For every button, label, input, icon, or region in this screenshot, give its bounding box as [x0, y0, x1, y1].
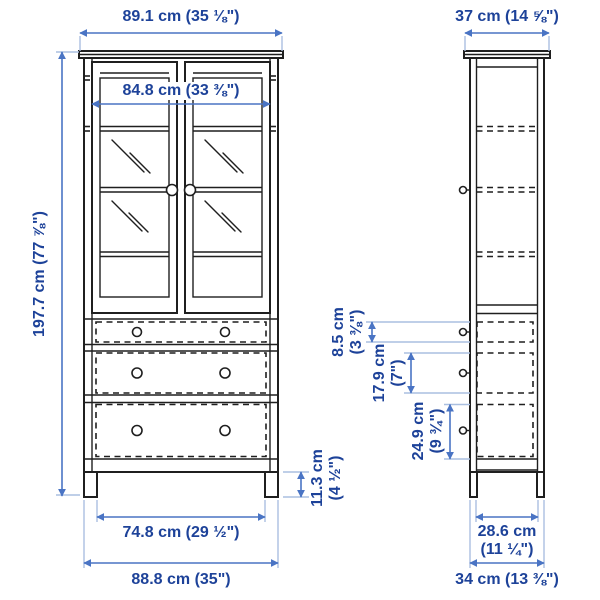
dim-inner-base-depth [476, 500, 538, 522]
imperial-text: (11 ¼") [478, 541, 537, 559]
imperial-text: (4 ½") [327, 449, 345, 507]
dim-label-top-drawer-height: 8.5 cm (3 ⅜") [330, 307, 366, 357]
dimension-lines [56, 33, 549, 568]
imperial-text: (7") [389, 344, 407, 403]
drawer-1 [96, 322, 266, 342]
imperial-text: (14 ⅝") [505, 8, 559, 25]
dim-overall-depth [465, 33, 549, 51]
side-drawer-2-knob [460, 370, 467, 377]
metric-text: 88.8 cm [131, 571, 190, 588]
metric-text: 8.5 cm [330, 307, 348, 357]
dim-label-middle-drawer-height: 17.9 cm (7") [371, 344, 407, 403]
metric-text: 34 cm [455, 571, 500, 588]
side-drawer-3 [477, 405, 533, 457]
imperial-text: (35") [195, 571, 231, 588]
metric-text: 84.8 cm [123, 82, 182, 99]
dim-leg-height [283, 472, 309, 497]
metric-text: 37 cm [455, 8, 500, 25]
front-view-drawing [79, 51, 283, 497]
front-drawers [84, 319, 278, 459]
imperial-text: (29 ½") [186, 524, 240, 541]
dim-label-front-overall-width: 89.1 cm (35 ⅛") [120, 8, 243, 26]
front-right-leg [265, 472, 278, 497]
drawer-1-knob [133, 328, 142, 337]
dim-label-bottom-drawer-height: 24.9 cm (9 ¾") [410, 402, 446, 461]
drawer-2-knob [132, 368, 142, 378]
side-drawer-1-knob [460, 329, 467, 336]
imperial-text: (13 ⅜") [505, 571, 559, 588]
dimension-diagram: 89.1 cm (35 ⅛") 84.8 cm (33 ⅜") 197.7 cm… [0, 0, 600, 600]
dim-overall-height [56, 52, 80, 496]
drawer-3-knob [220, 426, 230, 436]
imperial-text: (33 ⅜") [186, 82, 240, 99]
side-view-drawing [460, 51, 551, 497]
dim-label-overall-height: 197.7 cm (77 ⅞") [31, 211, 49, 337]
dim-label-overall-base-width: 88.8 cm (35") [128, 571, 233, 589]
drawer-2-knob [220, 368, 230, 378]
left-door-knob [167, 185, 178, 196]
side-drawer-1 [477, 322, 533, 342]
drawer-3-knob [132, 426, 142, 436]
drawer-3 [96, 405, 266, 457]
front-left-leg [84, 472, 97, 497]
imperial-text: (3 ⅜") [348, 307, 366, 357]
metric-text: 24.9 cm [410, 402, 428, 461]
dim-label-overall-base-depth: 34 cm (13 ⅜") [452, 571, 562, 589]
right-door-knob [185, 185, 196, 196]
front-body [84, 58, 278, 472]
metric-text: 11.3 cm [309, 449, 327, 507]
side-drawers [477, 305, 538, 470]
side-knobs [460, 187, 471, 435]
side-back-leg [537, 472, 544, 497]
imperial-text: (9 ¾") [428, 402, 446, 461]
dim-top-drawer-height [366, 322, 470, 342]
side-drawer-3-knob [460, 427, 467, 434]
side-body [470, 58, 544, 472]
drawer-1-knob [221, 328, 230, 337]
metric-text: 74.8 cm [123, 524, 182, 541]
metric-text: 89.1 cm [123, 8, 182, 25]
dim-label-inner-base-width: 74.8 cm (29 ½") [120, 524, 243, 542]
dim-label-overall-depth: 37 cm (14 ⅝") [452, 8, 562, 26]
imperial-text: (77 ⅞") [31, 211, 48, 265]
metric-text: 28.6 cm [478, 523, 537, 541]
dim-front-overall-width [80, 33, 282, 51]
dim-inner-base-width [97, 500, 265, 522]
dim-label-leg-height: 11.3 cm (4 ½") [309, 449, 345, 507]
dim-label-front-inner-width: 84.8 cm (33 ⅜") [120, 82, 243, 100]
side-door-knob [460, 187, 467, 194]
side-shelves [477, 127, 538, 257]
imperial-text: (35 ⅛") [186, 8, 240, 25]
cabinet-line-drawing [0, 0, 600, 600]
side-front-leg [470, 472, 477, 497]
dim-label-inner-base-depth: 28.6 cm (11 ¼") [475, 523, 540, 559]
side-drawer-2 [477, 353, 533, 393]
metric-text: 197.7 cm [31, 269, 48, 337]
metric-text: 17.9 cm [371, 344, 389, 403]
drawer-2 [96, 353, 266, 393]
